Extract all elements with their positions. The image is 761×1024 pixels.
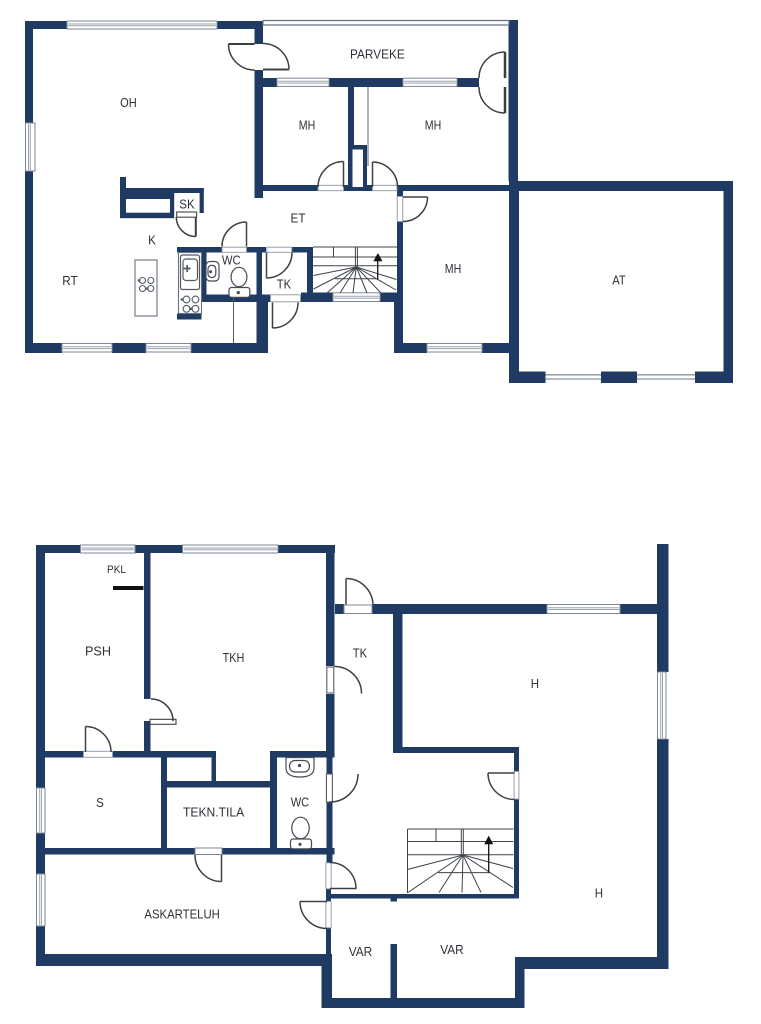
svg-text:ET: ET [291,210,306,225]
svg-text:OH: OH [120,95,137,110]
svg-text:VAR: VAR [349,944,373,959]
svg-text:WC: WC [291,795,310,810]
svg-text:WC: WC [222,253,241,268]
svg-text:ASKARTELUH: ASKARTELUH [144,907,220,922]
svg-text:K: K [148,232,156,247]
svg-text:PKL: PKL [107,564,126,576]
svg-text:RT: RT [62,273,78,288]
svg-text:PSH: PSH [85,644,111,659]
svg-text:AT: AT [612,273,626,288]
svg-text:TKH: TKH [223,650,245,665]
svg-text:PARVEKE: PARVEKE [350,46,405,61]
svg-text:S: S [96,795,104,810]
svg-text:TK: TK [353,646,368,661]
svg-text:MH: MH [299,118,316,133]
svg-text:SK: SK [179,197,195,212]
svg-text:MH: MH [445,261,462,276]
svg-text:H: H [531,676,539,691]
svg-text:H: H [595,886,603,901]
svg-text:TK: TK [277,277,292,292]
svg-text:MH: MH [425,118,442,133]
svg-text:TEKN.TILA: TEKN.TILA [183,805,244,820]
svg-text:VAR: VAR [440,942,464,957]
